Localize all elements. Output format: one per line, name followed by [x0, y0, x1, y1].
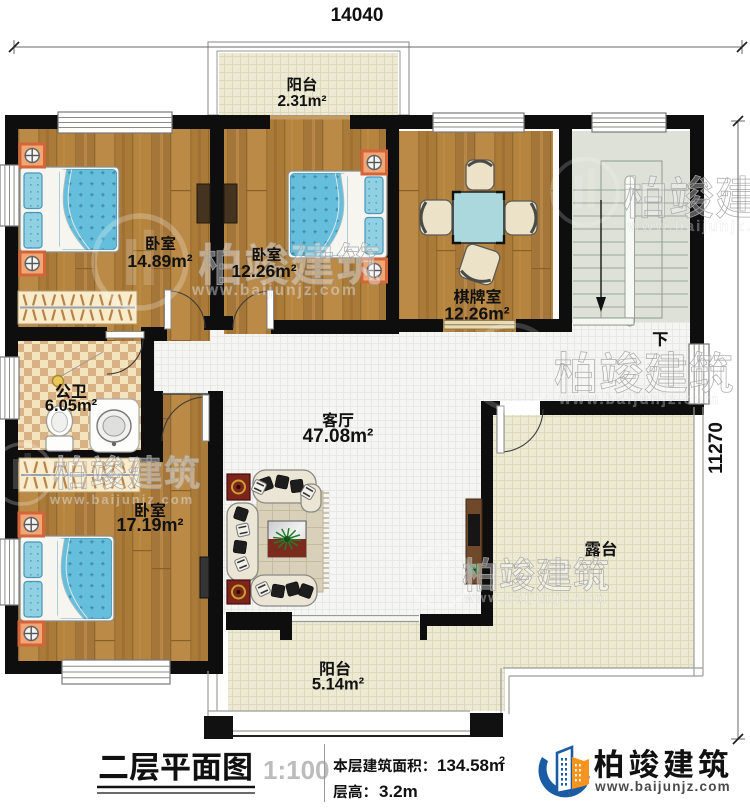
svg-text:47.08m²: 47.08m² — [303, 426, 374, 447]
svg-text:14.89m²: 14.89m² — [127, 251, 192, 271]
svg-text:17.19m²: 17.19m² — [116, 515, 183, 535]
svg-text:www.baijunjz.com: www.baijunjz.com — [594, 779, 731, 794]
svg-text:www.baijunjz.com: www.baijunjz.com — [191, 282, 358, 299]
svg-text:2.31m²: 2.31m² — [277, 93, 326, 110]
svg-text:1:100: 1:100 — [263, 755, 330, 785]
svg-text:www.baijunjz.com: www.baijunjz.com — [558, 391, 720, 408]
svg-text:www.baijunjz.com: www.baijunjz.com — [627, 218, 750, 235]
svg-text:5.14m²: 5.14m² — [312, 676, 365, 694]
svg-text:14040: 14040 — [331, 5, 384, 26]
svg-text:12.26m²: 12.26m² — [231, 261, 296, 281]
svg-text:11270: 11270 — [706, 422, 727, 474]
svg-text:12.26m²: 12.26m² — [444, 304, 509, 324]
svg-text:134.58m: 134.58m — [437, 756, 504, 775]
svg-text:6.05m²: 6.05m² — [45, 397, 98, 415]
svg-text:2: 2 — [499, 755, 505, 767]
svg-text:www.baijunjz.com: www.baijunjz.com — [463, 590, 608, 605]
svg-text:www.baijunjz.com: www.baijunjz.com — [49, 492, 194, 507]
svg-text:3.2m: 3.2m — [379, 782, 418, 801]
